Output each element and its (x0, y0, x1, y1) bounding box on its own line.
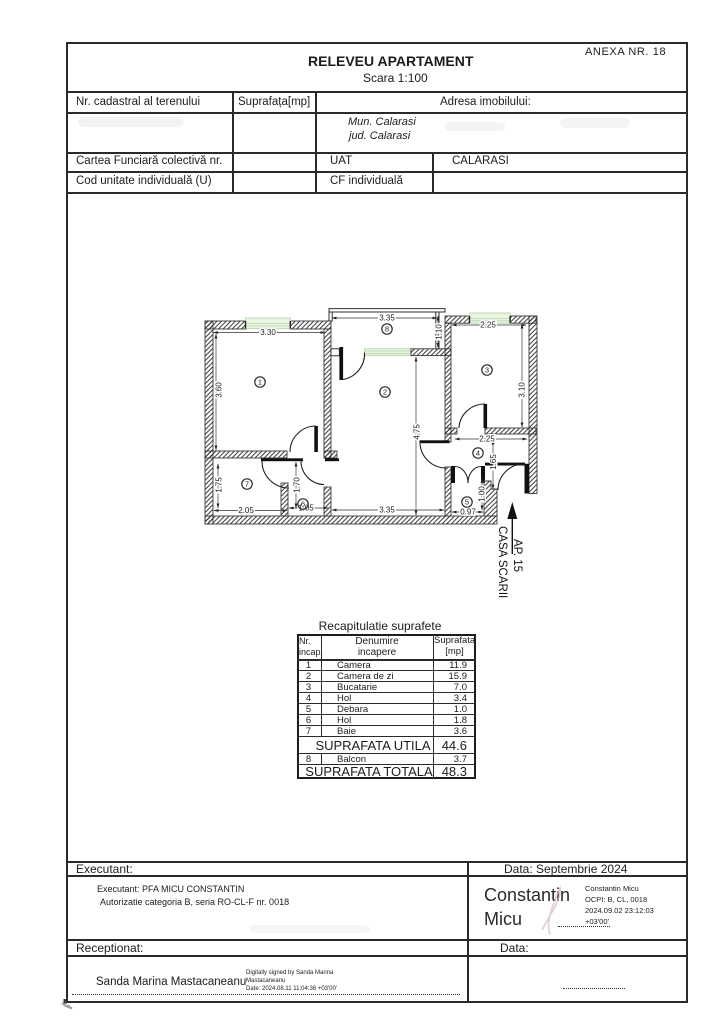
svg-text:2.25: 2.25 (479, 435, 495, 444)
svg-text:1.10: 1.10 (435, 324, 444, 340)
svg-text:3.30: 3.30 (260, 328, 276, 337)
svg-text:4: 4 (476, 449, 480, 458)
svg-text:3.60: 3.60 (215, 382, 224, 398)
svg-text:2: 2 (383, 388, 387, 397)
svg-text:8: 8 (385, 325, 389, 334)
svg-text:7: 7 (245, 480, 249, 489)
svg-text:0.97: 0.97 (460, 508, 476, 517)
svg-text:3: 3 (485, 366, 489, 375)
svg-text:1.00: 1.00 (478, 486, 487, 502)
svg-text:5: 5 (465, 498, 469, 507)
svg-text:AP. 15: AP. 15 (511, 539, 523, 572)
svg-text:1.65: 1.65 (489, 454, 498, 470)
svg-text:2.25: 2.25 (480, 321, 496, 330)
svg-text:6: 6 (301, 500, 305, 509)
svg-text:1.70: 1.70 (293, 477, 302, 493)
svg-text:CASA SCARII: CASA SCARII (496, 526, 508, 598)
svg-text:2.05: 2.05 (238, 506, 254, 515)
svg-text:3.10: 3.10 (518, 382, 527, 398)
svg-text:3.35: 3.35 (379, 314, 395, 323)
svg-text:1.75: 1.75 (215, 477, 224, 493)
svg-text:4.75: 4.75 (413, 424, 422, 440)
svg-text:1: 1 (258, 378, 262, 387)
svg-text:3.35: 3.35 (379, 506, 395, 515)
